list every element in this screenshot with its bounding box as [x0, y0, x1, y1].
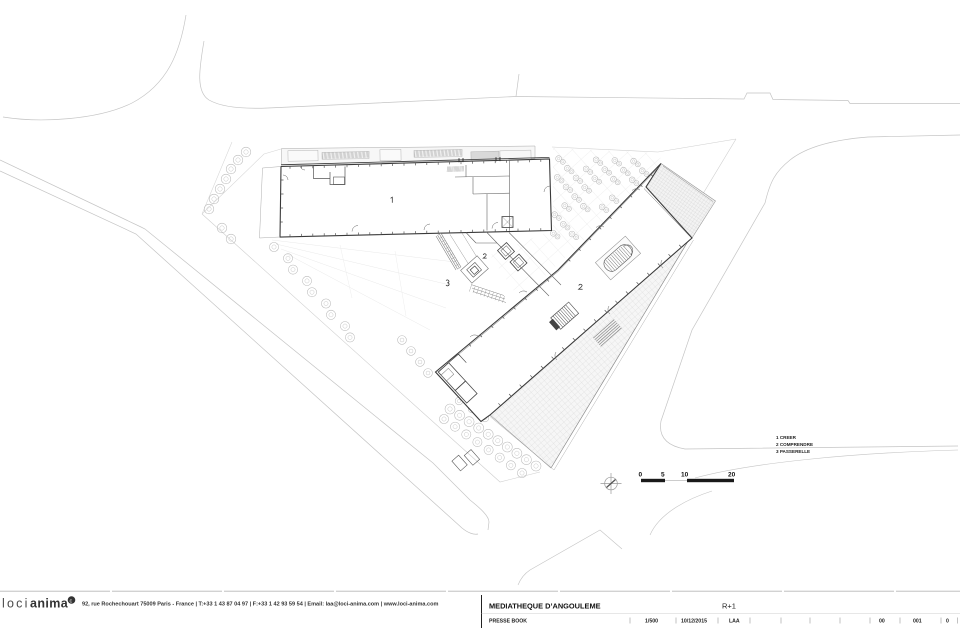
svg-text:001: 001 — [913, 619, 922, 625]
svg-text:5: 5 — [661, 472, 665, 479]
svg-text:anima: anima — [30, 597, 69, 611]
svg-text:1 CREER: 1 CREER — [776, 435, 797, 440]
svg-text:92, rue Rochechouart 75009 Par: 92, rue Rochechouart 75009 Paris - Franc… — [82, 602, 438, 608]
svg-text:10: 10 — [681, 472, 689, 479]
svg-text:c: c — [70, 598, 73, 604]
svg-text:3 PASSERELLE: 3 PASSERELLE — [776, 449, 810, 454]
svg-text:20: 20 — [728, 472, 736, 479]
svg-text:0: 0 — [639, 472, 643, 479]
svg-text:R+1: R+1 — [722, 602, 736, 611]
svg-text:MEDIATHEQUE D’ANGOULEME: MEDIATHEQUE D’ANGOULEME — [489, 602, 601, 611]
svg-text:0: 0 — [946, 619, 949, 625]
svg-text:PRESSE BOOK: PRESSE BOOK — [489, 619, 527, 625]
svg-text:2 COMPRENDRE: 2 COMPRENDRE — [776, 442, 813, 447]
svg-text:LAA: LAA — [729, 619, 740, 625]
svg-text:loci: loci — [2, 597, 30, 611]
svg-text:10/12/2015: 10/12/2015 — [681, 619, 707, 625]
svg-text:1/500: 1/500 — [645, 619, 658, 625]
svg-text:00: 00 — [879, 619, 885, 625]
